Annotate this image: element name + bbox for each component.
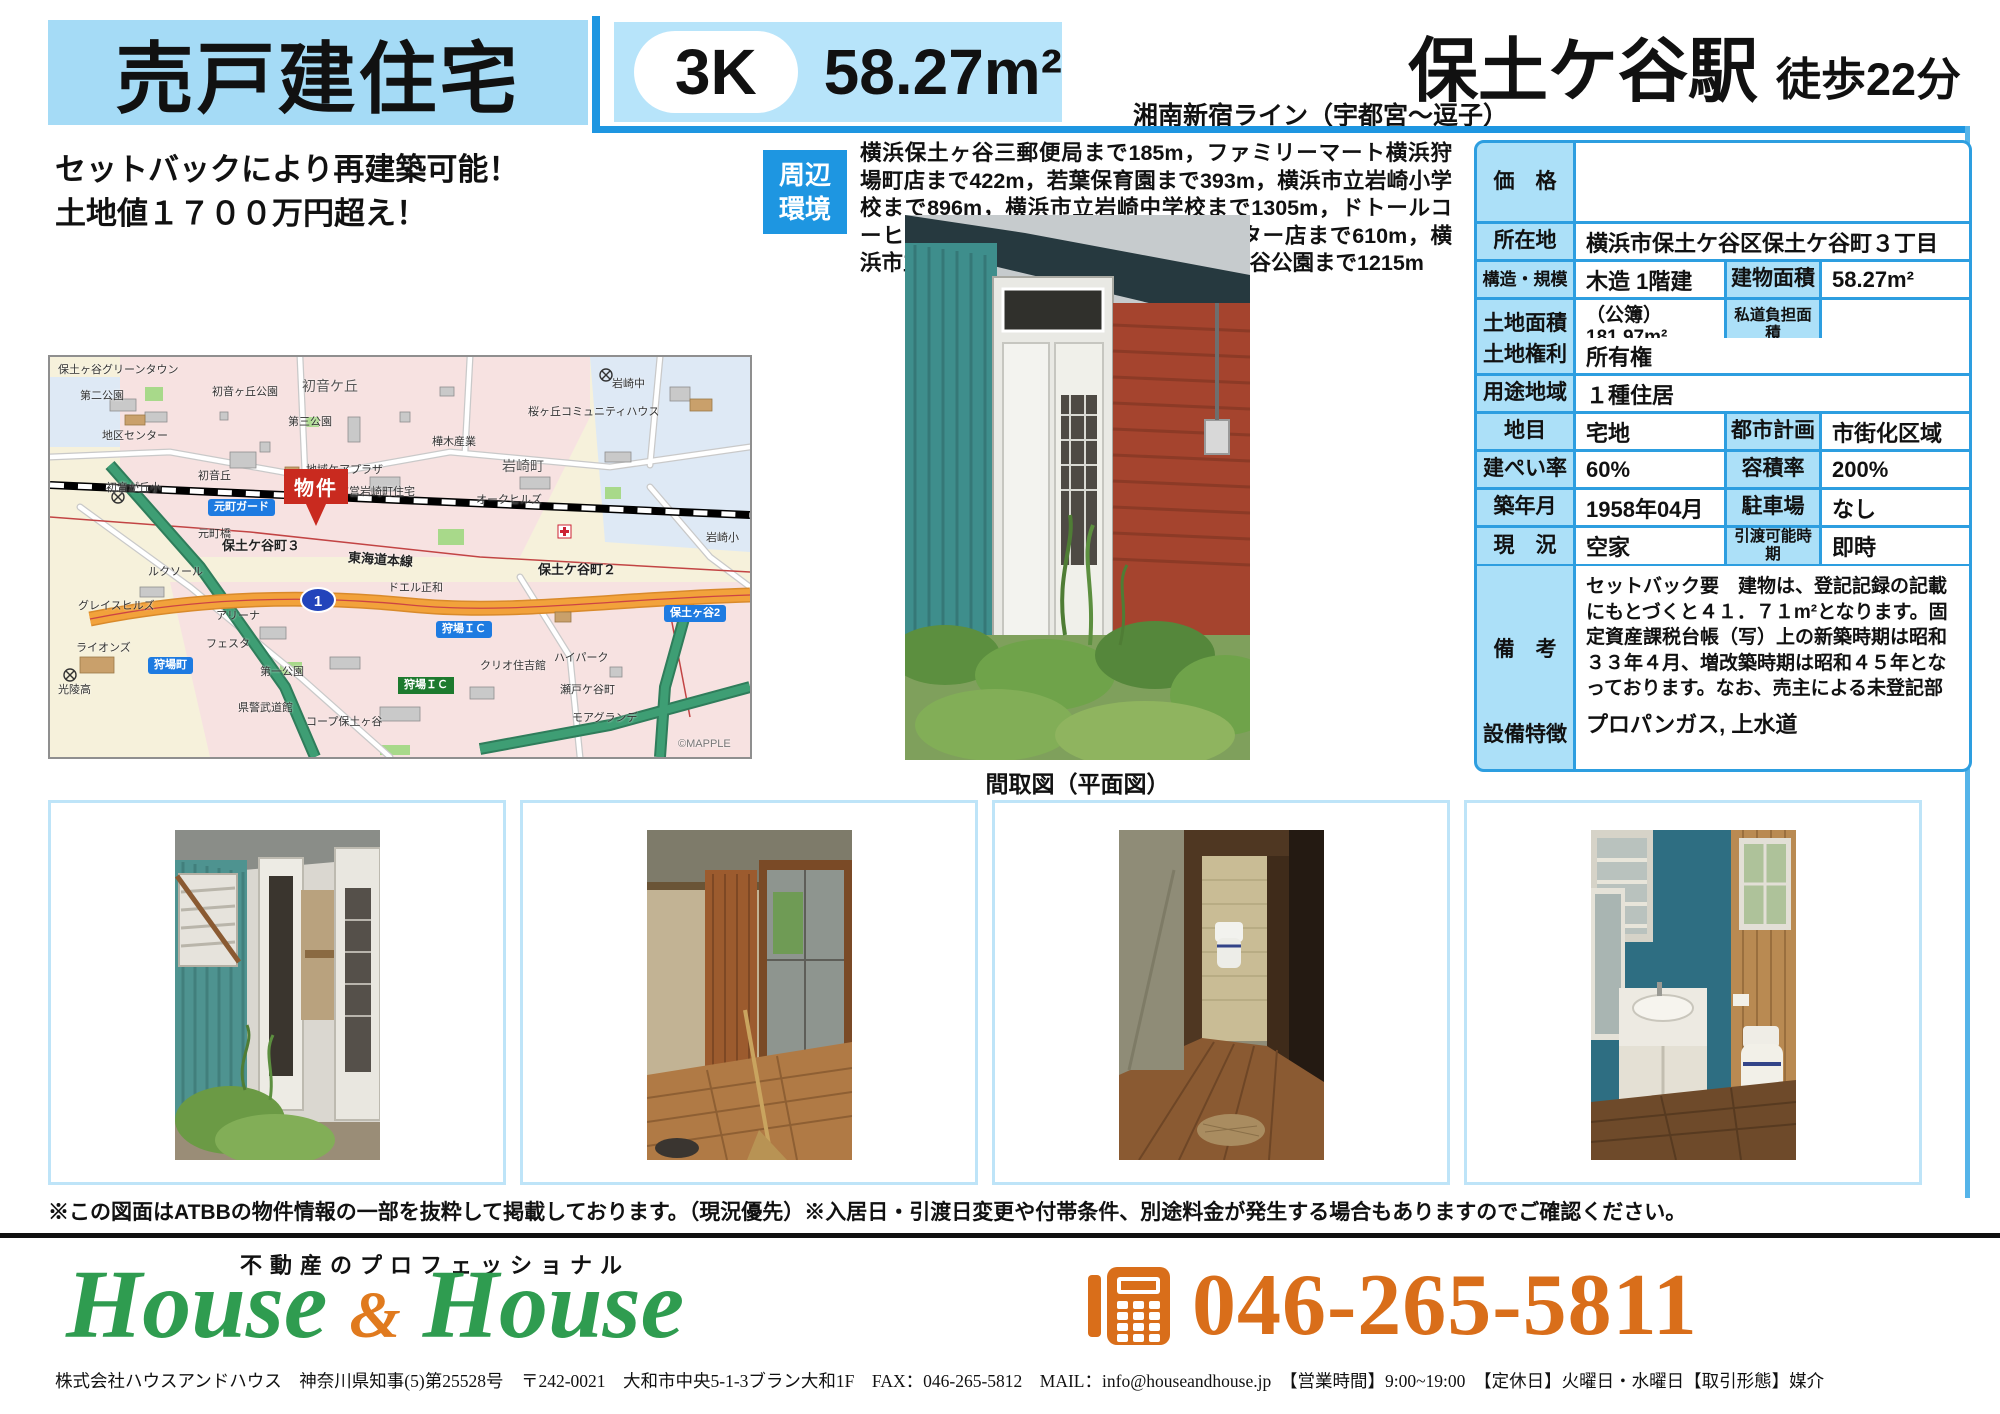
interior-photo-2-graphic [647,830,852,1160]
floor-area: 58.27m² [824,35,1062,109]
brand-ampersand: & [349,1283,400,1349]
map-badge-motomachi-guard: 元町ガード [208,499,275,516]
map-label: 樺木産業 [432,437,476,448]
company-logo: House & House [66,1256,684,1354]
walk-minutes: 徒歩22分 [1776,57,1961,106]
row-label: 構造・規模 [1477,262,1573,297]
map-label: 初音ケ丘 [302,379,358,393]
row-label: 地目 [1477,414,1573,449]
map-label: 初音が丘小 [106,483,161,494]
headline-line2: 土地値１７００万円超え！ [55,192,519,236]
map-label: コープ保土ヶ谷 [306,717,382,728]
row-value: 空家 [1576,528,1724,564]
row-label: 所在地 [1477,224,1573,259]
map-label: モアグランデ [572,713,637,724]
header-rule [592,126,1970,133]
map-label: 桜ヶ丘コミュニティハウス [528,407,659,418]
interior-photo-1 [48,800,506,1185]
svg-text:1: 1 [314,593,322,610]
row-value: 所有権 [1576,338,1969,373]
flyer-page: 売戸建住宅 3K 58.27m² 湘南新宿ライン（宇都宮～逗子） 保土ケ谷駅 徒… [0,0,2000,1414]
row-value2: なし [1822,490,1969,525]
row-label: 用途地域 [1477,376,1573,411]
map-label: アリーナ [216,611,260,622]
row-value: 宅地 [1576,414,1724,449]
map-label: ルクソール [148,567,203,578]
row-label2: 引渡可能時期 [1727,528,1819,564]
table-row: 所在地 横浜市保土ケ谷区保土ケ谷町３丁目 [1477,224,1969,259]
fax-phone-icon [1088,1267,1170,1345]
brand-house-right: House [423,1256,684,1354]
map-label: 市営岩崎町住宅 [338,487,415,498]
map-label: 保土ケ谷町３ [222,539,300,552]
row-label: 土地権利 [1477,338,1573,373]
row-label: 設備特徴 [1477,701,1573,769]
interior-photo-3 [992,800,1450,1185]
row-value: 60% [1576,452,1724,487]
footer-divider [0,1233,2000,1238]
map-label: 瀬戸ケ谷町 [560,685,615,696]
map-label: ドエル正和 [388,583,443,594]
row-value: プロパンガス, 上水道 [1576,701,1969,769]
row-label: 現 況 [1477,528,1573,564]
row-value2: 即時 [1822,528,1969,564]
phone-block: 046-265-5811 [1088,1262,1698,1350]
table-row: 構造・規模 木造 1階建 建物面積 58.27m² [1477,262,1969,297]
company-info-line: 株式会社ハウスアンドハウス 神奈川県知事(5)第25528号 〒242-0021… [55,1368,1824,1393]
map-badge-kariba-ic-blue: 狩場ＩＣ [436,621,492,638]
station-name: 保土ケ谷駅 [1408,36,1758,106]
station-title: 保土ケ谷駅 徒歩22分 [1408,36,1961,106]
row-value: 木造 1階建 [1576,262,1724,297]
map-badge-kariba-ic-green: 狩場ＩＣ [398,677,454,694]
row-label: 価 格 [1477,143,1573,221]
map-label: 保土ケ谷町２ [538,563,616,576]
disclaimer-text: ※この図面はATBBの物件情報の一部を抜粋して掲載しております。（現況優先）※入… [48,1196,1686,1226]
row-label: 建ぺい率 [1477,452,1573,487]
interior-photo-2 [520,800,978,1185]
floorplan-caption: 間取図（平面図） [905,765,1250,799]
row-label2: 駐車場 [1727,490,1819,525]
table-row: 現 況 空家 引渡可能時期 即時 [1477,528,1969,563]
sales-headline: セットバックにより再建築可能！ 土地値１７００万円超え！ [55,148,519,236]
row-value2: 200% [1822,452,1969,487]
main-exterior-photo [905,215,1250,760]
table-row: 備 考 セットバック要 建物は、登記記録の記載にもとづくと４１．７１m²となりま… [1477,566,1969,698]
layout-pill: 3K [634,31,798,113]
row-value [1576,143,1969,221]
row-label: 築年月 [1477,490,1573,525]
row-value: 横浜市保土ケ谷区保土ケ谷町３丁目 [1576,224,1969,259]
row-value: １種住居 [1576,376,1969,411]
map-label: 初音丘 [198,471,231,482]
table-row: 建ぺい率 60% 容積率 200% [1477,452,1969,487]
interior-photo-4 [1464,800,1922,1185]
row-value: 1958年04月 [1576,490,1724,525]
map-label: 地区センター [102,431,168,442]
map-label: 岩崎小 [706,533,739,544]
map-attribution: ©MAPPLE [678,739,731,750]
row-label2: 容積率 [1727,452,1819,487]
table-row: 土地面積 （公簿）181.97m² 私道負担面積 [1477,300,1969,335]
map-badge-kariba-cho: 狩場町 [148,657,193,674]
table-row: 設備特徴 プロパンガス, 上水道 [1477,701,1969,769]
location-map: 1 保土ヶ谷グリーンタウン 第二公園 地区センター 初音ヶ丘公園 初音ケ丘 第三… [48,355,752,759]
table-row: 用途地域 １種住居 [1477,376,1969,411]
row-value2: 市街化区域 [1822,414,1969,449]
map-label: 第一公園 [260,667,304,678]
interior-photo-1-graphic [175,830,380,1160]
spec-banner: 3K 58.27m² [614,22,1062,122]
row-value2: 58.27m² [1822,262,1969,297]
map-label: 岩崎町 [502,459,544,473]
map-label: 保土ヶ谷グリーンタウン [58,365,178,376]
row-label2: 都市計画 [1727,414,1819,449]
table-row: 地目 宅地 都市計画 市街化区域 [1477,414,1969,449]
interior-photo-3-graphic [1119,830,1324,1160]
map-label: ライオンズ [76,643,131,654]
map-label: クリオ住吉館 [480,661,546,672]
map-label: 光陵高 [58,685,91,696]
map-label: フェスタ [206,639,250,650]
map-badge-hodogaya2: 保土ヶ谷2 [664,605,726,622]
brand-house-left: House [66,1256,327,1354]
map-label: ハイパーク [554,653,609,664]
property-map-marker: 物件 [284,469,348,526]
headline-line1: セットバックにより再建築可能！ [55,148,519,192]
surroundings-badge: 周辺環境 [763,150,847,234]
row-label2: 建物面積 [1727,262,1819,297]
map-label: 第三公園 [288,417,332,428]
property-type-banner: 売戸建住宅 [48,20,588,125]
phone-number: 046-265-5811 [1192,1262,1698,1350]
property-details-table: 価 格 所在地 横浜市保土ケ谷区保土ケ谷町３丁目 構造・規模 木造 1階建 建物… [1474,140,1972,772]
map-label: 初音ヶ丘公園 [212,387,278,398]
interior-photo-4-graphic [1591,830,1796,1160]
map-label: 県警武道館 [238,703,293,714]
table-row: 土地権利 所有権 [1477,338,1969,373]
map-label: オークヒルズ [476,495,542,506]
map-label: グレイスヒルズ [78,601,155,612]
map-label: 岩崎中 [612,379,645,390]
header-divider [592,16,600,129]
table-row: 築年月 1958年04月 駐車場 なし [1477,490,1969,525]
exterior-photo-graphic [905,215,1250,760]
map-label: 第二公園 [80,391,124,402]
property-marker-label: 物件 [284,469,348,504]
property-marker-tail [306,504,326,526]
table-row: 価 格 [1477,143,1969,221]
